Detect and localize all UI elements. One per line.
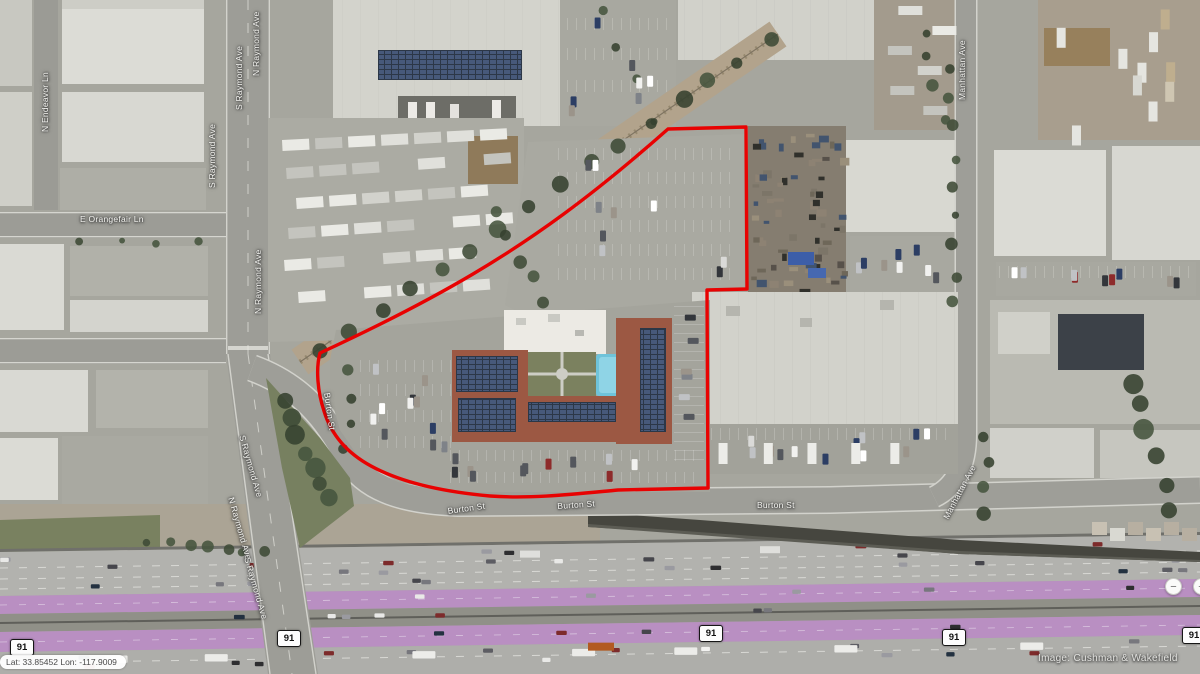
- street-label-s-raymond-top: S Raymond Ave: [234, 46, 244, 110]
- map-canvas[interactable]: E Orangefair Ln N Endeavor Ln S Raymond …: [0, 0, 1200, 674]
- street-label-manhattan-top: Manhattan Ave: [957, 40, 967, 100]
- storage-yard: [748, 126, 849, 296]
- street-label-orangefair: E Orangefair Ln: [80, 214, 144, 224]
- street-label-endeavor: N Endeavor Ln: [40, 72, 50, 132]
- warehouse-right-center: [692, 292, 958, 474]
- route-91-shield: 91: [699, 625, 723, 642]
- warehouse-top-center: [333, 0, 593, 126]
- street-label-burton-3: Burton St: [757, 500, 795, 510]
- coordinates-readout: Lat: 33.85452 Lon: -117.9009: [0, 655, 126, 669]
- minus-icon: −: [1170, 581, 1176, 593]
- hotel-complex: [330, 300, 710, 492]
- route-91-shield: 91: [10, 639, 34, 656]
- route-91-shield: 91: [277, 630, 301, 647]
- route-91-shield: 91: [942, 629, 966, 646]
- zoom-out-button[interactable]: −: [1165, 578, 1182, 595]
- street-label-s-raymond-2: S Raymond Ave: [207, 124, 217, 188]
- attribution-text: Image: Cushman & Wakefield: [1038, 653, 1178, 664]
- street-label-n-raymond-top: N Raymond Ave: [251, 11, 261, 76]
- satellite-imagery: [0, 0, 1200, 674]
- route-91-shield: 91: [1182, 627, 1200, 644]
- street-label-n-raymond-mid: N Raymond Ave: [253, 249, 263, 314]
